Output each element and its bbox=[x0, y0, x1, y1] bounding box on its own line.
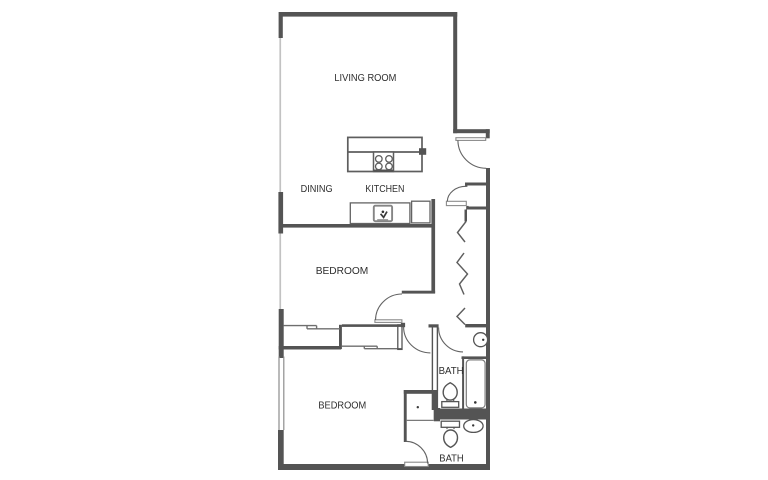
svg-text:BEDROOM: BEDROOM bbox=[318, 401, 366, 412]
svg-text:BATH: BATH bbox=[439, 454, 463, 465]
svg-text:BEDROOM: BEDROOM bbox=[316, 266, 369, 277]
svg-text:KITCHEN: KITCHEN bbox=[365, 184, 404, 195]
svg-text:DINING: DINING bbox=[301, 184, 333, 195]
svg-text:BATH: BATH bbox=[439, 366, 464, 377]
svg-text:LIVING ROOM: LIVING ROOM bbox=[334, 73, 396, 84]
